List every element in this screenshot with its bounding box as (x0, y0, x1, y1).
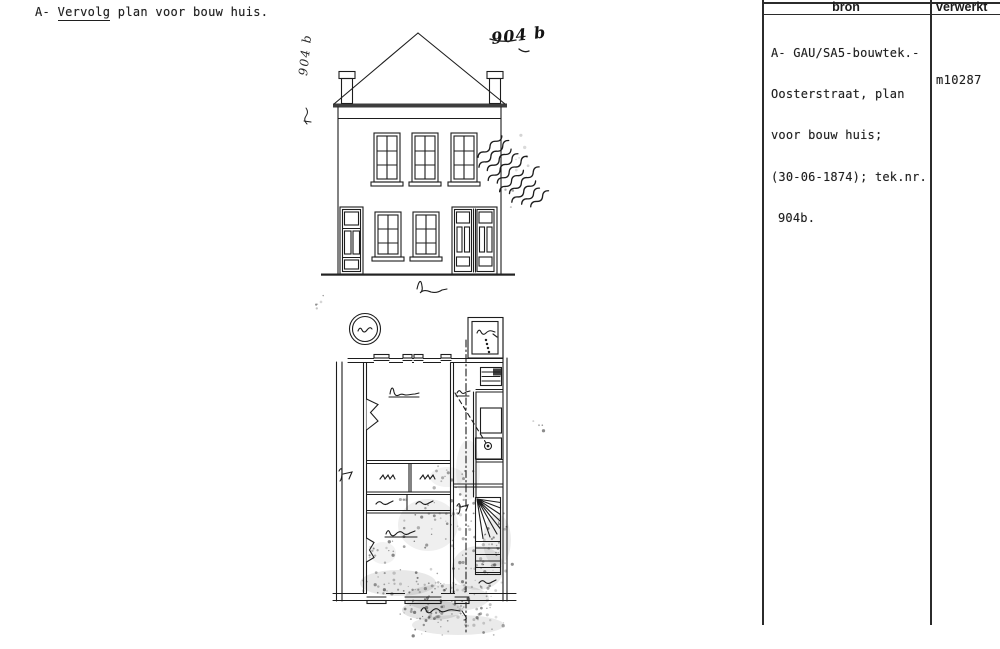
elevation-drawing (321, 33, 515, 293)
handwritten-annotations: 904 b 904 b (296, 22, 557, 217)
plan-left-outer-wall (337, 362, 343, 601)
elevation-caption-script (417, 281, 447, 293)
margin-mark (304, 108, 311, 124)
ground-line (321, 274, 515, 276)
architectural-drawing: 904 b 904 b (0, 0, 1000, 649)
sheet-number-top-right: 904 b (490, 22, 547, 48)
annex-room (468, 318, 503, 359)
upper-window (409, 133, 441, 186)
double-door (452, 207, 497, 274)
sheet-number-left-margin: 904 b (296, 33, 314, 76)
plan-top-wall (348, 355, 503, 365)
small-room (481, 408, 502, 433)
plan-room-left-wall (364, 363, 367, 594)
front-door-left (340, 207, 363, 274)
ground-window (372, 212, 404, 261)
upper-window (448, 133, 480, 186)
chimney-left (339, 72, 355, 104)
document-page: A- Vervolg plan voor bouw huis. bron ver… (0, 0, 1000, 649)
cellar-stair-cupboard (476, 368, 503, 393)
cursive-scribble-block (471, 130, 557, 218)
cornice-band (333, 104, 507, 108)
chimney-breast (367, 399, 379, 430)
well-symbol (350, 314, 381, 345)
chimney-right (487, 72, 503, 104)
ground-window (410, 212, 442, 261)
upper-window (371, 133, 403, 186)
roof-edge (334, 33, 418, 104)
